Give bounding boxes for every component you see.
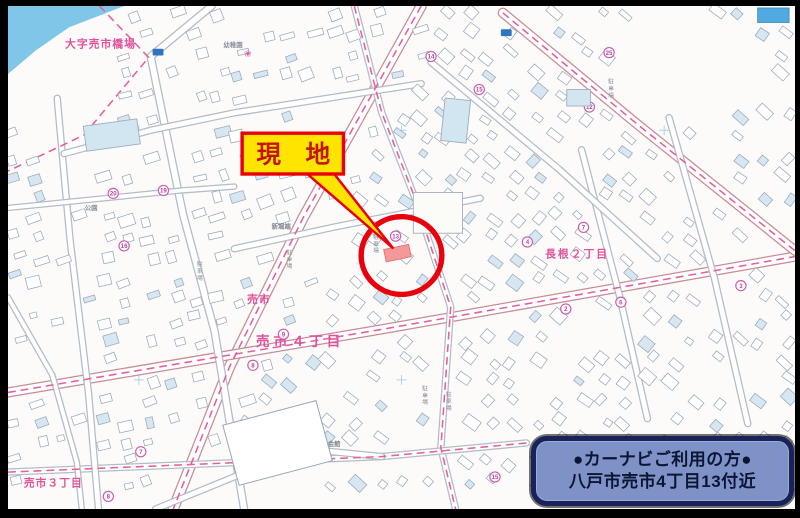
- map-canvas: 大字売市橋場売市売市４丁目長根２丁目売市３丁目売市公園幼稚園マエダストア売市店新…: [8, 6, 795, 509]
- svg-text:大字売市橋場: 大字売市橋場: [65, 38, 136, 51]
- map-screenshot: 大字売市橋場売市売市４丁目長根２丁目売市３丁目売市公園幼稚園マエダストア売市店新…: [0, 0, 800, 518]
- navi-line2: 八戸市売市4丁目13付近: [569, 471, 756, 493]
- svg-text:駐車場: 駐車場: [422, 385, 428, 407]
- svg-text:駐車場: 駐車場: [446, 390, 452, 412]
- route-shield-icon: [153, 49, 164, 56]
- pool: [758, 8, 789, 23]
- large-building: [441, 98, 471, 143]
- kindergarten-flower-icon: ❀: [244, 49, 251, 59]
- svg-text:会館: 会館: [328, 439, 341, 448]
- svg-text:売市: 売市: [247, 293, 271, 306]
- route-shield-icon: [501, 29, 512, 36]
- svg-text:売市３丁目: 売市３丁目: [24, 477, 83, 490]
- site-label-text: 現 地: [256, 141, 330, 168]
- svg-text:新堀端: 新堀端: [272, 221, 292, 230]
- svg-text:14: 14: [428, 55, 435, 61]
- svg-text:15: 15: [492, 475, 499, 481]
- svg-text:売市４丁目: 売市４丁目: [256, 333, 344, 349]
- svg-text:幼稚園: 幼稚園: [223, 40, 242, 49]
- svg-text:公園: 公園: [85, 203, 98, 212]
- svg-text:20: 20: [110, 192, 117, 198]
- map-area: 大字売市橋場売市売市４丁目長根２丁目売市３丁目売市公園幼稚園マエダストア売市店新…: [8, 6, 795, 509]
- car-navi-info-box: ●カーナビご利用の方● 八戸市売市4丁目13付近: [531, 436, 794, 506]
- svg-text:長根２丁目: 長根２丁目: [545, 248, 609, 261]
- park-outline: [413, 192, 462, 233]
- svg-text:15: 15: [476, 88, 483, 94]
- svg-text:16: 16: [121, 244, 128, 250]
- svg-text:13: 13: [392, 234, 399, 240]
- svg-text:駐車場: 駐車場: [608, 78, 614, 100]
- svg-text:25: 25: [606, 51, 613, 57]
- navi-line1: ●カーナビご利用の方●: [573, 449, 752, 471]
- svg-text:駐車場: 駐車場: [286, 249, 292, 271]
- large-building: [567, 90, 591, 107]
- svg-text:駐車場: 駐車場: [197, 260, 203, 282]
- svg-text:19: 19: [160, 189, 167, 195]
